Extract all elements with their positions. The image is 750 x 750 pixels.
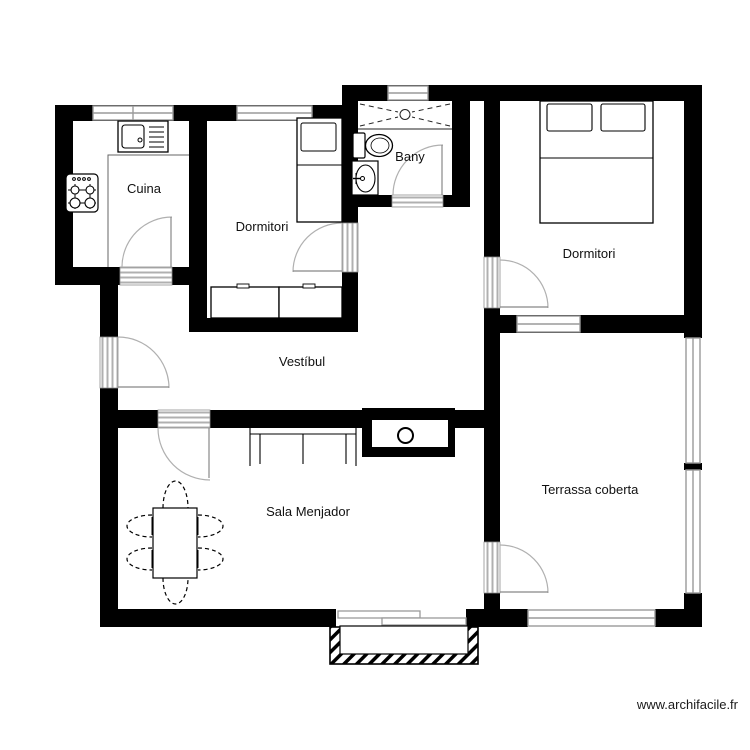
dining-table-icon bbox=[153, 508, 197, 578]
chair-icon bbox=[163, 578, 188, 604]
window-terrassa-bottom bbox=[528, 610, 655, 626]
porch-steps bbox=[330, 626, 478, 664]
door-dormitori-2 bbox=[500, 260, 548, 308]
threshold-cuina-door bbox=[120, 267, 172, 285]
room-label-terrassa-coberta: Terrassa coberta bbox=[542, 482, 640, 497]
threshold-terrassa-door bbox=[484, 542, 500, 593]
window-terrassa-right-2 bbox=[686, 470, 700, 593]
toilet-icon bbox=[353, 133, 393, 158]
kitchen-counter bbox=[108, 155, 189, 267]
door-sala-menjador bbox=[158, 428, 210, 480]
chair-icon bbox=[198, 548, 223, 570]
double-bed-icon bbox=[540, 101, 653, 223]
washbasin-icon bbox=[352, 161, 378, 195]
door-terrassa bbox=[500, 545, 548, 593]
window-terrassa-right-1 bbox=[686, 338, 700, 463]
fireplace-icon bbox=[362, 408, 455, 457]
floor-plan-canvas: Cuina Dormitori Bany Dormitori Vestíbul … bbox=[0, 0, 750, 750]
wardrobe-icon bbox=[211, 284, 342, 318]
window-cuina bbox=[93, 106, 173, 120]
chair-icon bbox=[198, 515, 223, 537]
stove-icon bbox=[66, 174, 98, 212]
room-label-dormitori-1: Dormitori bbox=[236, 219, 289, 234]
window-dormitori-2 bbox=[517, 316, 580, 332]
door-cuina bbox=[122, 217, 172, 267]
chair-icon bbox=[127, 515, 152, 537]
floor-plan-svg: Cuina Dormitori Bany Dormitori Vestíbul … bbox=[0, 0, 750, 750]
threshold-dormitori2-door bbox=[484, 257, 500, 308]
single-bed-icon bbox=[297, 118, 342, 222]
room-label-cuina: Cuina bbox=[127, 181, 162, 196]
chair-icon bbox=[163, 481, 188, 508]
threshold-dormitori1-door bbox=[342, 223, 358, 272]
door-dormitori-1 bbox=[293, 223, 342, 272]
room-label-bany: Bany bbox=[395, 149, 425, 164]
threshold-bany-door bbox=[392, 195, 443, 207]
threshold-front-door bbox=[100, 337, 118, 388]
chair-icon bbox=[127, 548, 152, 570]
room-label-vestibul: Vestíbul bbox=[279, 354, 325, 369]
room-label-sala-menjador: Sala Menjador bbox=[266, 504, 350, 519]
window-bany bbox=[388, 86, 428, 100]
shower-icon bbox=[358, 104, 452, 129]
kitchen-sink-icon bbox=[118, 121, 168, 152]
room-label-dormitori-2: Dormitori bbox=[563, 246, 616, 261]
door-front bbox=[118, 337, 169, 388]
sliding-door bbox=[338, 611, 466, 625]
watermark-link[interactable]: www.archifacile.fr bbox=[636, 697, 739, 712]
threshold-sala-door bbox=[158, 410, 210, 428]
